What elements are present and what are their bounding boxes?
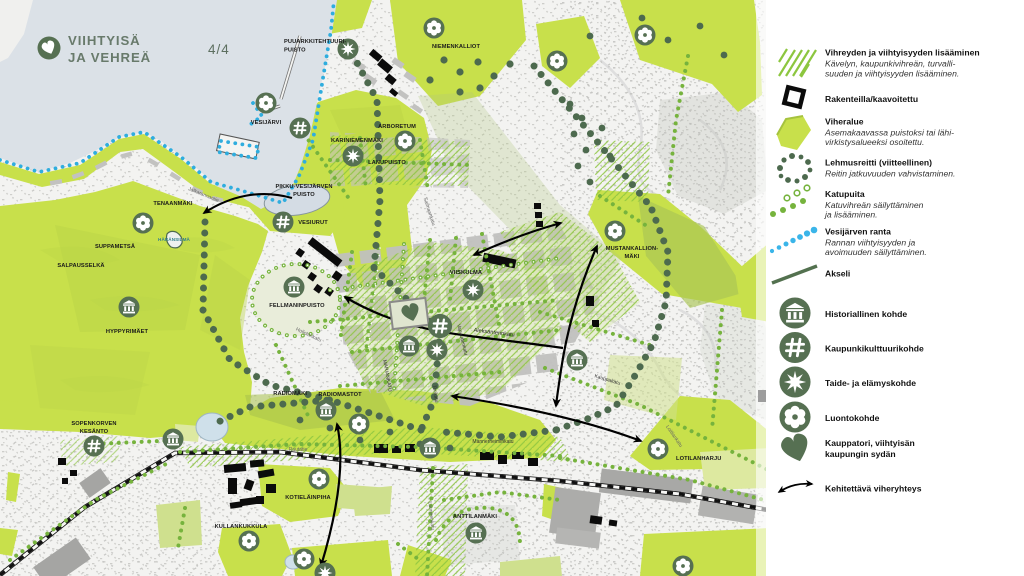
svg-text:RADIOMASTOT: RADIOMASTOT bbox=[318, 392, 362, 398]
svg-text:PUISTO: PUISTO bbox=[293, 192, 315, 198]
svg-text:Viheralue: Viheralue bbox=[825, 117, 864, 127]
svg-text:MÄKI: MÄKI bbox=[625, 253, 640, 260]
svg-text:Akseli: Akseli bbox=[825, 269, 850, 279]
svg-text:Asemakaavassa puistoksi tai lä: Asemakaavassa puistoksi tai lähi- bbox=[824, 128, 954, 138]
svg-text:VESIURUT: VESIURUT bbox=[298, 220, 328, 226]
svg-text:VIIHTYISÄ: VIIHTYISÄ bbox=[68, 33, 141, 48]
svg-text:Historiallinen kohde: Historiallinen kohde bbox=[825, 309, 907, 319]
svg-text:avoimuuden säilyttäminen.: avoimuuden säilyttäminen. bbox=[825, 247, 927, 257]
svg-text:Reitin jatkuvuuden vahvistamin: Reitin jatkuvuuden vahvistaminen. bbox=[825, 169, 955, 179]
svg-text:MUSTANKALLION-: MUSTANKALLION- bbox=[606, 246, 658, 252]
svg-text:suuden ja viihtyisyyden lisääm: suuden ja viihtyisyyden lisääminen. bbox=[825, 69, 959, 79]
svg-text:KESÄNTO: KESÄNTO bbox=[80, 428, 109, 435]
svg-text:Rakenteilla/kaavoitettu: Rakenteilla/kaavoitettu bbox=[825, 94, 918, 104]
svg-text:KARINIEMENMÄKI: KARINIEMENMÄKI bbox=[331, 137, 383, 144]
svg-text:SUPPAMETSÄ: SUPPAMETSÄ bbox=[95, 243, 135, 250]
svg-text:KULLANKUKKULA: KULLANKUKKULA bbox=[215, 524, 268, 530]
svg-text:Lehmusreitti (viitteellinen): Lehmusreitti (viitteellinen) bbox=[825, 158, 932, 168]
svg-text:SOPENKORVEN: SOPENKORVEN bbox=[71, 421, 116, 427]
svg-text:HYPPYRIMÄET: HYPPYRIMÄET bbox=[106, 328, 149, 335]
svg-text:Kauppatori, viihtyisän: Kauppatori, viihtyisän bbox=[825, 438, 915, 448]
svg-text:Taide- ja elämyskohde: Taide- ja elämyskohde bbox=[825, 378, 916, 388]
svg-text:Katuvihreän säilyttäminen: Katuvihreän säilyttäminen bbox=[825, 200, 924, 210]
svg-text:virkistysalueeksi osoitettu.: virkistysalueeksi osoitettu. bbox=[825, 137, 924, 147]
svg-text:FELLMANINPUISTO: FELLMANINPUISTO bbox=[269, 303, 325, 309]
svg-text:Rautatie: Rautatie bbox=[289, 447, 308, 453]
svg-text:VIISKULMA: VIISKULMA bbox=[450, 270, 482, 276]
svg-text:Vesijärven ranta: Vesijärven ranta bbox=[825, 227, 891, 237]
svg-text:ARBORETUM: ARBORETUM bbox=[378, 124, 416, 130]
svg-text:Luontokohde: Luontokohde bbox=[825, 413, 880, 423]
svg-text:KOTIELÄINPIHA: KOTIELÄINPIHA bbox=[285, 494, 331, 501]
svg-text:VESIJÄRVI: VESIJÄRVI bbox=[251, 119, 282, 126]
svg-text:Kehitettävä viheryhteys: Kehitettävä viheryhteys bbox=[825, 484, 922, 494]
svg-text:LOTILANHARJU: LOTILANHARJU bbox=[676, 456, 721, 462]
svg-text:JA VEHREÄ: JA VEHREÄ bbox=[68, 50, 151, 65]
svg-text:Rannan viihtyisyyden ja: Rannan viihtyisyyden ja bbox=[825, 238, 916, 248]
svg-text:Vihreyden ja viihtyisyyden lis: Vihreyden ja viihtyisyyden lisääminen bbox=[825, 48, 980, 58]
svg-text:PUISTO: PUISTO bbox=[284, 48, 306, 54]
svg-text:Kaupunkikulttuurikohde: Kaupunkikulttuurikohde bbox=[825, 344, 924, 354]
svg-text:Katupuita: Katupuita bbox=[825, 189, 865, 199]
svg-text:NIEMENKALLIOT: NIEMENKALLIOT bbox=[432, 44, 480, 50]
svg-text:PUUARKKITEHTUURI-: PUUARKKITEHTUURI- bbox=[284, 39, 346, 45]
svg-text:PIKKU-VESIJÄRVEN: PIKKU-VESIJÄRVEN bbox=[275, 183, 332, 190]
svg-text:kaupungin sydän: kaupungin sydän bbox=[825, 449, 896, 459]
svg-text:Mannerheiminkatu: Mannerheiminkatu bbox=[472, 439, 513, 445]
svg-text:ja lisääminen.: ja lisääminen. bbox=[824, 210, 878, 220]
svg-text:ANTTILANMÄKI: ANTTILANMÄKI bbox=[453, 513, 497, 520]
svg-text:Kävelyn, kaupunkivihreän, turv: Kävelyn, kaupunkivihreän, turvalli- bbox=[825, 59, 956, 69]
svg-text:4/4: 4/4 bbox=[208, 42, 230, 57]
svg-text:RADIOMÄKI: RADIOMÄKI bbox=[273, 390, 307, 397]
svg-text:HÄRÄNSILMÄ: HÄRÄNSILMÄ bbox=[158, 236, 190, 242]
svg-text:TENAANMÄKI: TENAANMÄKI bbox=[153, 200, 193, 207]
svg-text:LANUPUISTO: LANUPUISTO bbox=[368, 160, 406, 166]
svg-text:SALPAUSSELKÄ: SALPAUSSELKÄ bbox=[57, 262, 104, 269]
